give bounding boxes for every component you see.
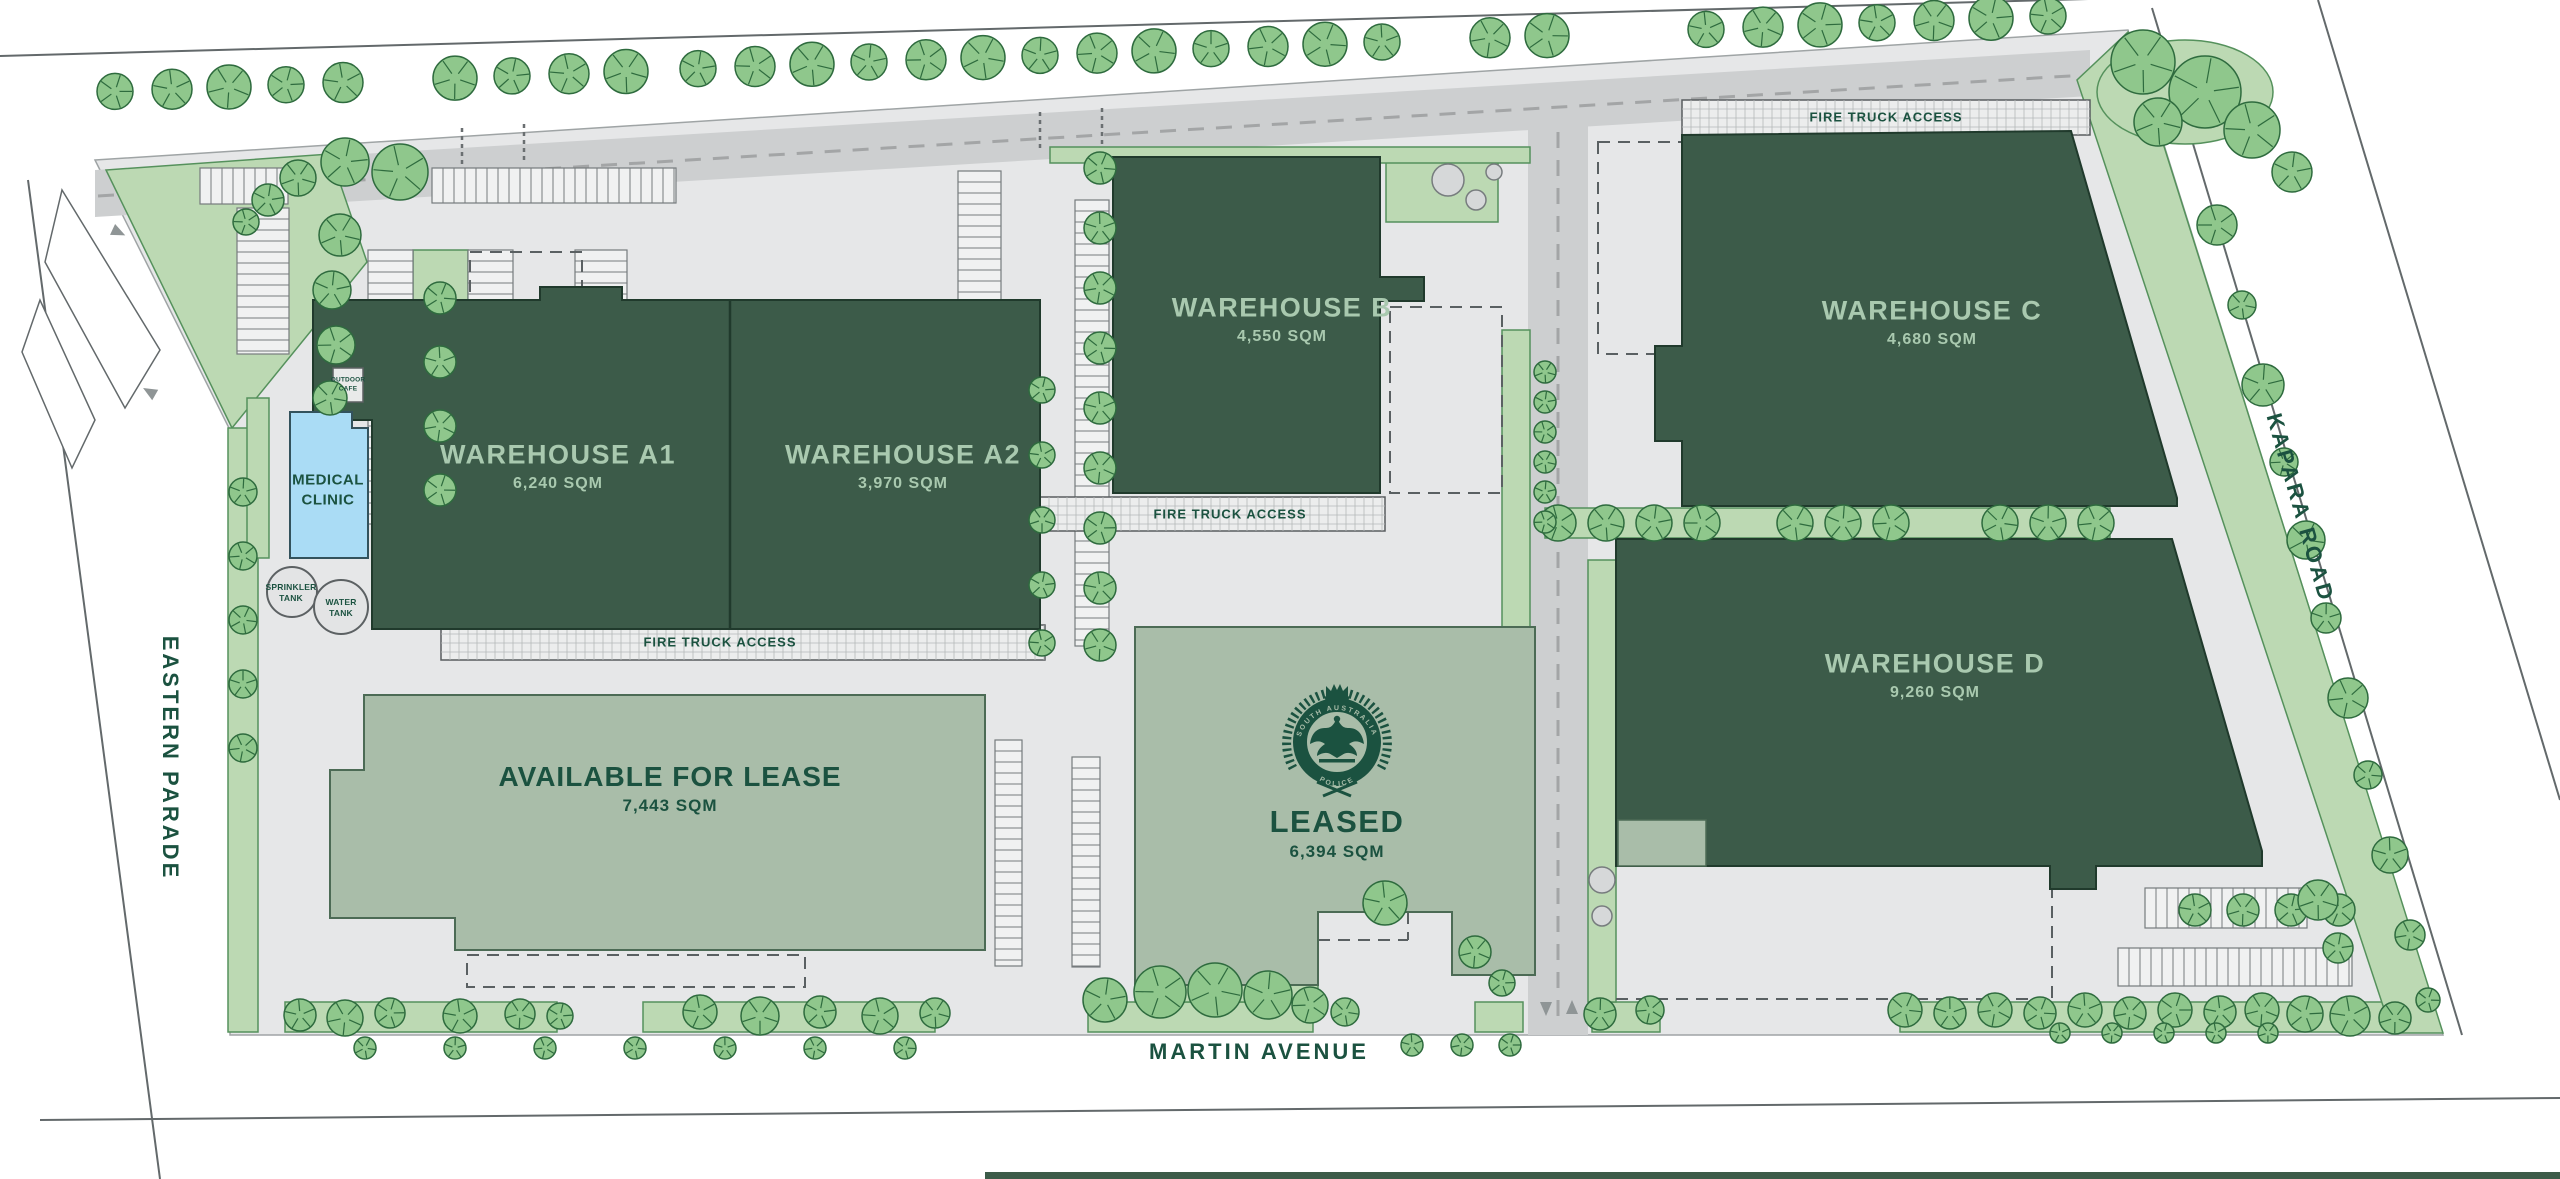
tree-icon	[1825, 505, 1861, 541]
tree-icon	[2272, 152, 2312, 192]
tree-icon	[2354, 761, 2382, 789]
tree-icon	[1688, 11, 1724, 47]
warehouse-d-area: 9,260 SQM	[1890, 684, 1980, 702]
tree-icon	[851, 44, 887, 80]
tree-icon	[1969, 0, 2013, 40]
outdoor-cafe-label-line2: CAFE	[339, 386, 358, 393]
tree-icon	[321, 138, 369, 186]
tree-icon	[1084, 452, 1116, 484]
tree-icon	[1873, 505, 1909, 541]
site-plan-drawing: SOUTH AUSTRALIA POLICE	[0, 0, 2560, 1179]
tree-icon	[1029, 442, 1055, 468]
tree-icon	[505, 999, 535, 1029]
tree-icon	[1084, 152, 1116, 184]
tree-icon	[1303, 22, 1347, 66]
tree-icon	[375, 998, 405, 1028]
tree-icon	[2102, 1023, 2122, 1043]
tree-icon	[2379, 1002, 2411, 1034]
warehouse-d-building	[1616, 539, 2262, 889]
tree-icon	[2328, 678, 2368, 718]
tree-icon	[229, 670, 257, 698]
tree-icon	[2030, 0, 2066, 34]
warehouse-c-label: WAREHOUSE C	[1822, 296, 2043, 327]
tree-icon	[862, 998, 898, 1034]
sprinkler-tank-label-line1: SPRINKLER	[266, 582, 317, 592]
south-edge-strip	[985, 1172, 2560, 1179]
tree-icon	[444, 1037, 466, 1059]
tree-icon	[354, 1037, 376, 1059]
tree-icon	[1470, 18, 1510, 58]
tree-icon	[1084, 512, 1116, 544]
martin-avenue-south-curb	[40, 1098, 2560, 1120]
tree-icon	[1534, 451, 1556, 473]
tree-icon	[604, 49, 648, 93]
available-for-lease-label: AVAILABLE FOR LEASE	[498, 761, 841, 793]
tree-icon	[1914, 0, 1954, 40]
tree-icon	[1084, 629, 1116, 661]
tree-icon	[317, 326, 355, 364]
tree-icon	[894, 1037, 916, 1059]
tree-icon	[2206, 1023, 2226, 1043]
tree-icon	[804, 996, 836, 1028]
tree-icon	[2179, 894, 2211, 926]
tree-icon	[424, 410, 456, 442]
tree-icon	[1083, 978, 1127, 1022]
fire-truck-access-label-mid: FIRE TRUCK ACCESS	[1153, 507, 1306, 522]
tree-icon	[534, 1037, 556, 1059]
tree-icon	[1534, 481, 1556, 503]
sprinkler-tank	[267, 567, 317, 617]
tree-icon	[714, 1037, 736, 1059]
tree-icon	[1534, 361, 1556, 383]
tree-icon	[1188, 963, 1242, 1017]
tree-icon	[424, 346, 456, 378]
tree-icon	[1193, 31, 1229, 67]
tree-icon	[313, 271, 351, 309]
tree-icon	[1888, 993, 1922, 1027]
tree-icon	[735, 46, 775, 86]
martin-avenue-road-label: MARTIN AVENUE	[1149, 1039, 1369, 1065]
tree-icon	[2030, 505, 2066, 541]
tree-icon	[1364, 24, 1400, 60]
tree-icon	[319, 214, 361, 256]
outdoor-cafe-label-line1: OUTDOOR	[331, 377, 366, 384]
tree-icon	[2330, 996, 2370, 1036]
tree-icon	[1084, 332, 1116, 364]
available-for-lease-area: 7,443 SQM	[623, 796, 718, 816]
tree-icon	[2287, 996, 2323, 1032]
tree-icon	[2024, 997, 2056, 1029]
tree-icon	[1499, 1034, 1521, 1056]
tree-icon	[683, 995, 717, 1029]
tree-icon	[280, 160, 316, 196]
tree-icon	[1292, 987, 1328, 1023]
medical-clinic-label-line2: CLINIC	[302, 492, 355, 509]
tree-icon	[1777, 505, 1813, 541]
medical-clinic-label-line1: MEDICAL	[292, 472, 364, 489]
tree-icon	[1401, 1034, 1423, 1056]
tree-icon	[1525, 14, 1569, 58]
tree-icon	[1331, 998, 1359, 1026]
tree-icon	[1029, 630, 1055, 656]
tree-icon	[2258, 1023, 2278, 1043]
tree-icon	[2227, 894, 2259, 926]
tree-icon	[207, 65, 251, 109]
tree-icon	[1244, 971, 1292, 1019]
fire-truck-access-label-north: FIRE TRUCK ACCESS	[1809, 110, 1962, 125]
warehouse-a1-area: 6,240 SQM	[513, 475, 603, 493]
tree-icon	[741, 997, 779, 1035]
tree-icon	[2158, 993, 2192, 1027]
tree-icon	[1534, 391, 1556, 413]
tree-icon	[1029, 507, 1055, 533]
tree-icon	[2154, 1023, 2174, 1043]
available-for-lease-building	[330, 695, 985, 950]
tree-icon	[1636, 996, 1664, 1024]
tree-icon	[1022, 37, 1058, 73]
tree-icon	[1029, 572, 1055, 598]
warehouse-b-label: WAREHOUSE B	[1172, 293, 1393, 324]
tree-icon	[2050, 1023, 2070, 1043]
warehouse-c-area: 4,680 SQM	[1887, 331, 1977, 349]
tree-icon	[1743, 7, 1783, 47]
tree-icon	[1859, 5, 1895, 41]
tree-icon	[372, 144, 428, 200]
tree-icon	[252, 184, 284, 216]
tree-icon	[424, 282, 456, 314]
tree-icon	[2416, 988, 2440, 1012]
tree-icon	[2323, 933, 2353, 963]
tree-icon	[284, 999, 316, 1031]
eastern-parade-road-label: EASTERN PARADE	[157, 636, 183, 881]
tree-icon	[1248, 26, 1288, 66]
tree-icon	[906, 40, 946, 80]
tree-icon	[2114, 997, 2146, 1029]
tree-icon	[2372, 837, 2408, 873]
tree-icon	[233, 209, 259, 235]
warehouse-d-annex	[1618, 820, 1706, 866]
tree-icon	[1636, 505, 1672, 541]
tree-icon	[1077, 33, 1117, 73]
tree-icon	[229, 734, 257, 762]
tree-icon	[1134, 966, 1186, 1018]
tree-icon	[1588, 505, 1624, 541]
leased-label: LEASED	[1270, 804, 1405, 840]
tree-icon	[1084, 272, 1116, 304]
tree-icon	[433, 56, 477, 100]
tree-icon	[152, 69, 192, 109]
tree-icon	[1684, 505, 1720, 541]
tree-icon	[2224, 102, 2280, 158]
tree-icon	[1798, 3, 1842, 47]
tree-icon	[1084, 392, 1116, 424]
tree-icon	[2228, 291, 2256, 319]
tree-icon	[494, 58, 530, 94]
sprinkler-tank-label-line2: TANK	[279, 593, 303, 603]
tree-icon	[2245, 993, 2279, 1027]
tree-icon	[624, 1037, 646, 1059]
water-tank-label-line1: WATER	[325, 597, 356, 607]
tree-icon	[1084, 212, 1116, 244]
tree-icon	[547, 1003, 573, 1029]
warehouse-d-label: WAREHOUSE D	[1825, 649, 2046, 680]
tree-icon	[2134, 98, 2182, 146]
tree-icon	[680, 51, 716, 87]
tree-icon	[1978, 993, 2012, 1027]
tree-icon	[920, 998, 950, 1028]
tree-icon	[2311, 603, 2341, 633]
water-tank-label-line2: TANK	[329, 608, 353, 618]
water-tank	[314, 580, 368, 634]
tree-icon	[1584, 998, 1616, 1030]
tree-icon	[424, 474, 456, 506]
site-plan: SOUTH AUSTRALIA POLICE WAREHOUSE A1 6,24…	[0, 0, 2560, 1179]
tree-icon	[1459, 936, 1491, 968]
tree-icon	[229, 542, 257, 570]
fire-truck-access-label-south: FIRE TRUCK ACCESS	[643, 635, 796, 650]
tree-icon	[268, 67, 304, 103]
tree-icon	[1451, 1034, 1473, 1056]
tree-icon	[327, 1000, 363, 1036]
tree-icon	[2197, 205, 2237, 245]
tree-icon	[1029, 377, 1055, 403]
tree-icon	[2078, 505, 2114, 541]
tree-icon	[2242, 364, 2284, 406]
warehouse-b-building	[1113, 157, 1424, 493]
warehouse-b-area: 4,550 SQM	[1237, 328, 1327, 346]
leased-area: 6,394 SQM	[1290, 842, 1385, 862]
tree-icon	[1534, 421, 1556, 443]
tree-icon	[1132, 29, 1176, 73]
tree-icon	[790, 42, 834, 86]
tree-icon	[1534, 511, 1556, 533]
tree-icon	[2068, 993, 2102, 1027]
tree-icon	[1489, 970, 1515, 996]
tree-icon	[1934, 997, 1966, 1029]
warehouse-a1-label: WAREHOUSE A1	[440, 440, 676, 471]
tree-icon	[2298, 880, 2338, 920]
tree-icon	[961, 36, 1005, 80]
tree-icon	[97, 73, 133, 109]
tree-icon	[229, 606, 257, 634]
tree-icon	[549, 54, 589, 94]
tree-icon	[323, 63, 363, 103]
tree-icon	[2111, 30, 2175, 94]
tree-icon	[229, 478, 257, 506]
warehouse-a2-area: 3,970 SQM	[858, 475, 948, 493]
tree-icon	[443, 999, 477, 1033]
tree-icon	[804, 1037, 826, 1059]
tree-icon	[2395, 920, 2425, 950]
tree-icon	[1982, 505, 2018, 541]
tree-icon	[1363, 881, 1407, 925]
warehouse-a2-label: WAREHOUSE A2	[785, 440, 1021, 471]
tree-icon	[1084, 572, 1116, 604]
